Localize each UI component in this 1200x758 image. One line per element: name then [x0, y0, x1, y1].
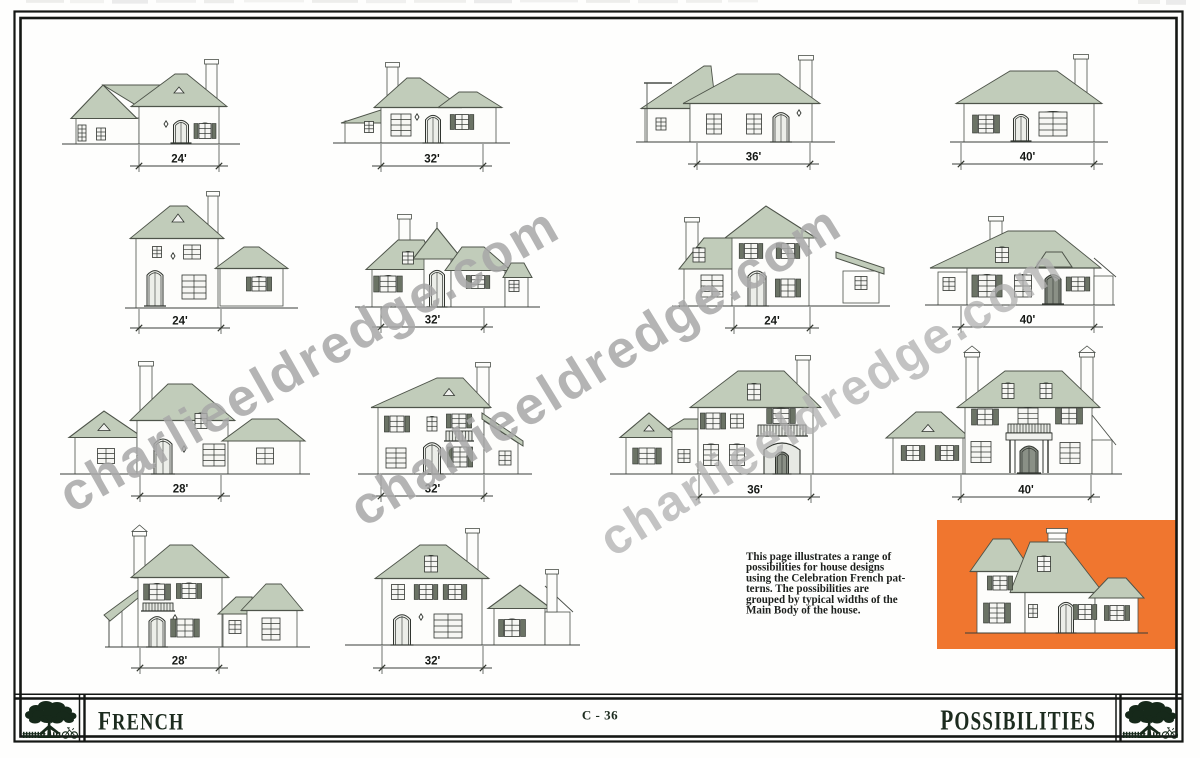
- svg-text:36': 36': [746, 152, 762, 164]
- svg-text:C - 36: C - 36: [582, 708, 618, 723]
- svg-text:FRENCH: FRENCH: [98, 707, 185, 736]
- svg-text:40': 40': [1018, 485, 1034, 497]
- svg-text:24': 24': [764, 316, 780, 328]
- svg-text:32': 32': [425, 656, 441, 668]
- svg-text:28': 28': [172, 656, 188, 668]
- svg-text:36': 36': [747, 485, 763, 497]
- svg-text:Main Body of the house.: Main Body of the house.: [746, 605, 861, 617]
- svg-text:24': 24': [172, 316, 188, 328]
- svg-text:40': 40': [1020, 315, 1036, 327]
- svg-text:28': 28': [173, 484, 189, 496]
- svg-text:40': 40': [1020, 152, 1036, 164]
- svg-text:24': 24': [171, 154, 187, 166]
- svg-text:POSSIBILITIES: POSSIBILITIES: [940, 706, 1096, 737]
- svg-text:32': 32': [424, 154, 440, 166]
